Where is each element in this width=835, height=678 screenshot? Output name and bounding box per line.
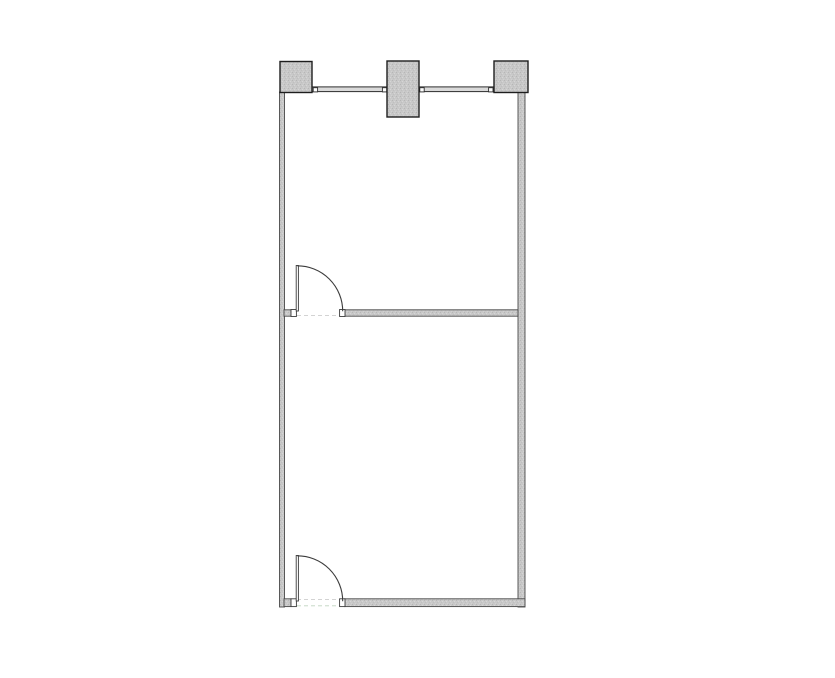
column-top-right [494, 61, 528, 93]
thresholds-layer [297, 316, 343, 606]
door-bottom [291, 556, 345, 607]
partition-wall-left-stub [284, 310, 291, 316]
doors-layer [291, 266, 345, 607]
bottom-wall-left-stub [284, 599, 291, 607]
walls-layer [280, 92, 526, 607]
window-band-left [312, 87, 387, 92]
right-exterior-wall [518, 92, 525, 607]
bottom-wall-main [345, 599, 525, 607]
door-swing-arc [297, 266, 342, 311]
window-band-right [419, 87, 494, 92]
floor-plan-canvas [0, 0, 835, 678]
window-end-mark [420, 88, 424, 92]
door-swing-arc [297, 556, 342, 601]
left-exterior-wall [280, 92, 285, 607]
door-jamb [291, 599, 296, 607]
window-end-mark [313, 88, 317, 92]
door-partition [291, 266, 345, 317]
door-leaf [296, 556, 298, 602]
window-end-mark [382, 88, 386, 92]
floor-plan-drawing [0, 0, 835, 678]
column-top-middle [387, 61, 419, 117]
window-end-mark [489, 88, 493, 92]
partition-wall-main [345, 310, 518, 316]
door-leaf [296, 266, 298, 312]
door-jamb [291, 310, 296, 317]
column-top-left [280, 62, 312, 93]
